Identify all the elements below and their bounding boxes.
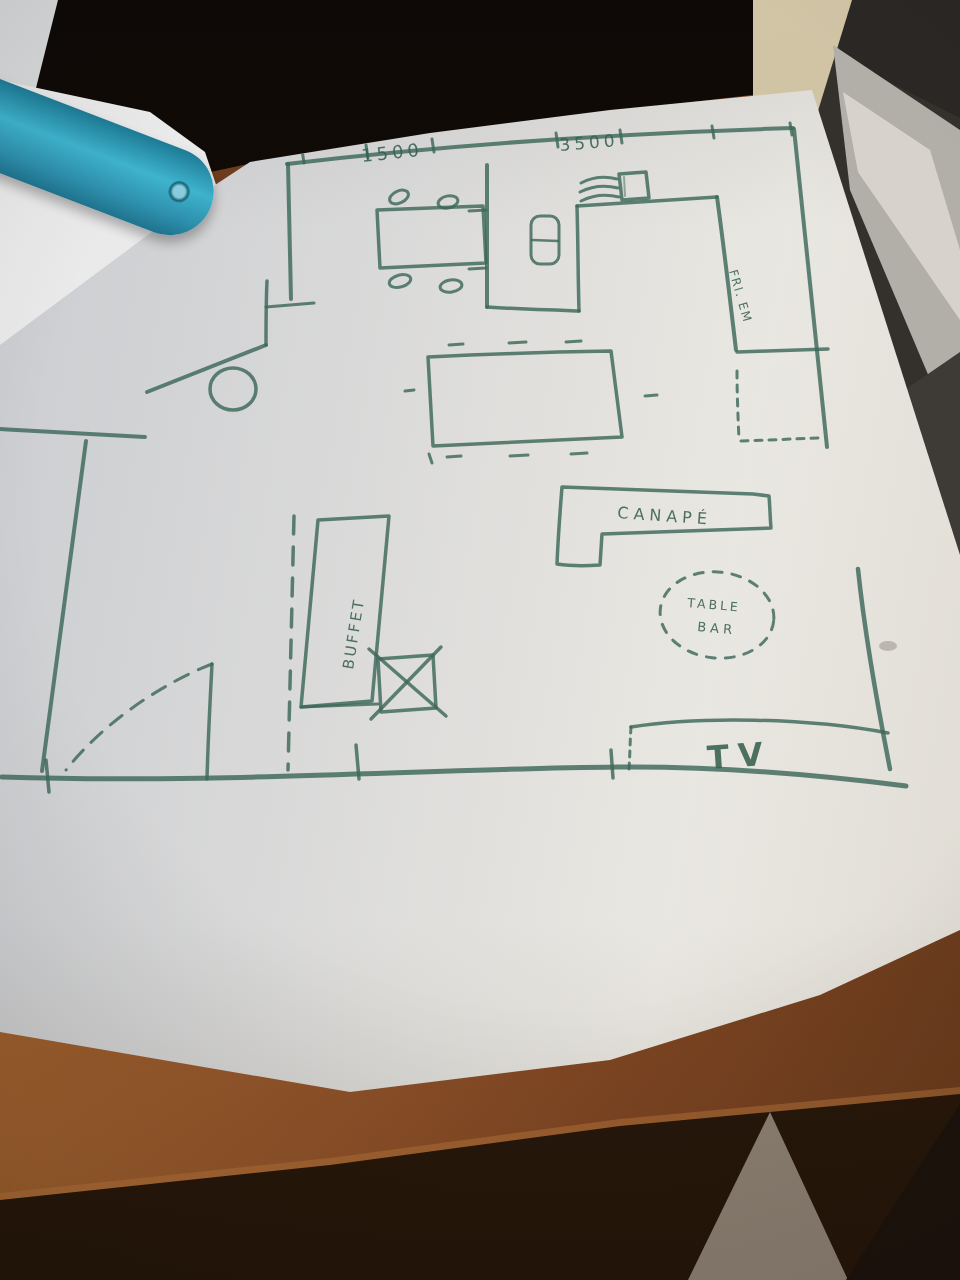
door-header [266, 303, 314, 307]
crossed-box-icon [369, 647, 446, 719]
door [66, 516, 294, 779]
photo-scene: 1500 3500 FRI. EM CANAPÉ TABLE BAR BUFFE… [0, 0, 960, 1280]
opening-dashed [288, 516, 294, 770]
shelf-line [737, 349, 828, 352]
tv-shelf-stub [629, 727, 631, 769]
fridge-dashed-h [741, 438, 819, 441]
wall-left-lower [42, 441, 86, 771]
door-leaf [207, 664, 212, 779]
buffet-label: BUFFET [339, 597, 368, 671]
tv-label: TV [706, 735, 773, 777]
table-bar-label-line2: BAR [697, 619, 737, 637]
sofa-label: CANAPÉ [617, 503, 713, 529]
sink-divider [532, 240, 558, 241]
wall-left-upper [288, 164, 291, 299]
wall-stub [266, 281, 267, 345]
fridge-dashed-v [737, 371, 739, 440]
counter-bottom [487, 307, 579, 311]
wall-left-mid [0, 429, 145, 437]
kitchen [377, 165, 828, 441]
table-bar-label-line1: TABLE [686, 595, 742, 615]
dining-table [405, 341, 657, 463]
dimension-label-left: 1500 [360, 139, 424, 166]
kitchen-table [377, 206, 486, 268]
sofa [557, 487, 771, 566]
column-circle [210, 368, 256, 410]
chair-icon [388, 272, 412, 289]
chairs [387, 187, 462, 293]
buffet [301, 516, 446, 719]
dimension-label-right: 3500 [559, 130, 620, 155]
counter-right [577, 206, 579, 311]
chair-icon [387, 187, 410, 206]
tv-shelf [631, 720, 888, 733]
table-bar [656, 566, 778, 663]
wall-diagonal [147, 345, 266, 392]
wall-right-lower [858, 569, 890, 769]
chair-icon [439, 279, 462, 294]
ruler-hole [165, 177, 193, 205]
stove-hatch-icon [580, 177, 619, 201]
wall-right-upper [794, 129, 827, 447]
paper-smudge [879, 641, 897, 651]
door-swing-arc [66, 664, 212, 770]
